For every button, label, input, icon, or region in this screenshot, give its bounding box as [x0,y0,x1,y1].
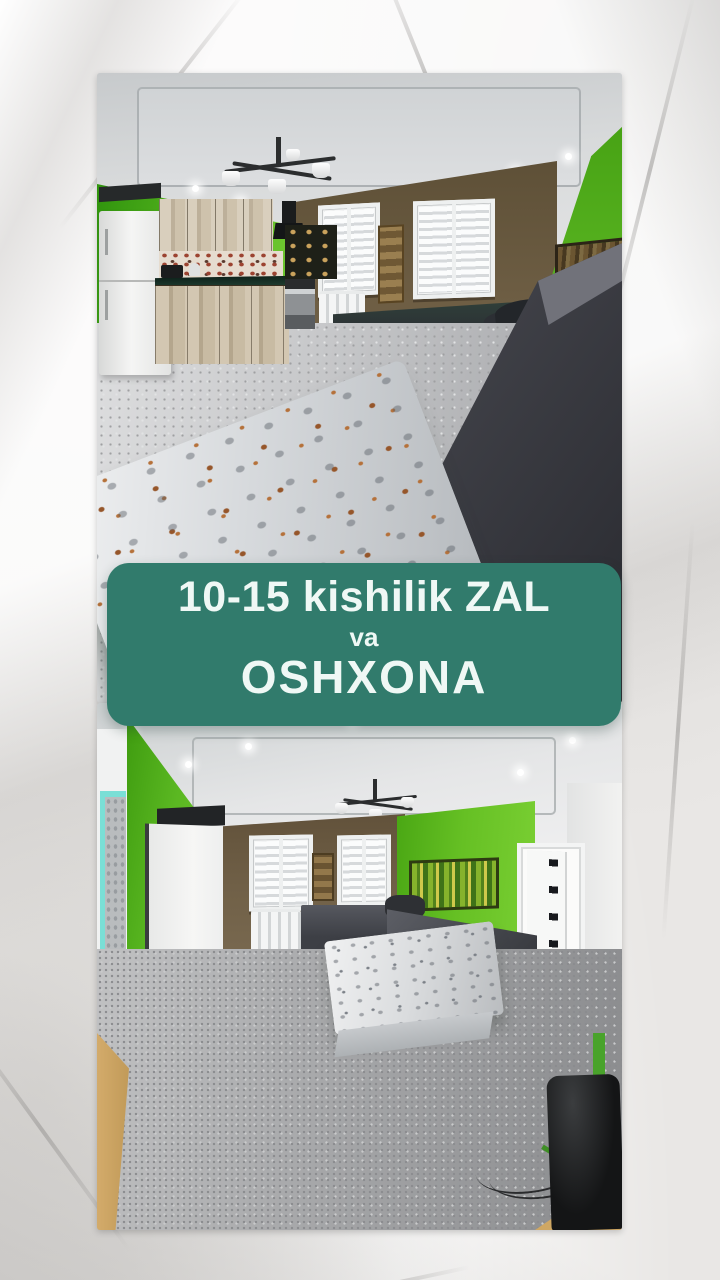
chandelier [222,137,340,203]
wood-decor-between-windows [378,224,404,303]
chandelier-lamp [312,163,330,178]
chandelier-rod [373,779,377,801]
ceiling-spotlight [245,743,252,750]
window-right [337,835,391,907]
ceiling-spotlight [517,769,524,776]
caption-connector: va [350,624,379,650]
dark-decor-panel [285,225,337,279]
lower-cabinets [155,285,289,364]
upper-cabinets [159,199,273,253]
window-mullion [279,839,283,907]
ceiling-spotlight [565,153,572,160]
chandelier-lamp [335,803,348,814]
paper-crease [254,1265,470,1280]
window-mullion [347,208,351,292]
ceiling-spotlight [569,737,576,744]
photo-bottom-hall [97,703,622,1230]
caption-banner: 10-15 kishilik ZAL va OSHXONA [107,563,621,726]
ceiling-spotlight [185,761,192,768]
chandelier-lamp [286,149,300,161]
wood-decor-between-windows [312,853,334,901]
refrigerator-handle [105,229,108,255]
chandelier-lamp [401,797,414,808]
refrigerator-handle [105,290,108,320]
caption-headline: 10-15 kishilik ZAL [178,576,550,619]
stove [285,279,315,329]
chandelier-lamp [268,179,286,194]
window-left [249,834,313,911]
chandelier-lamp [222,171,240,186]
kettle [189,263,200,276]
paper-crease [661,520,694,939]
window-mullion [362,839,366,902]
low-table-cloth [324,921,504,1035]
window-right [413,199,495,300]
flyer-canvas: 10-15 kishilik ZAL va OSHXONA [0,0,720,1280]
caption-subheadline: OSHXONA [241,654,488,700]
microwave [161,265,183,278]
speaker [546,1074,622,1230]
ceiling-spotlight [192,185,199,192]
window-mullion [452,204,456,294]
